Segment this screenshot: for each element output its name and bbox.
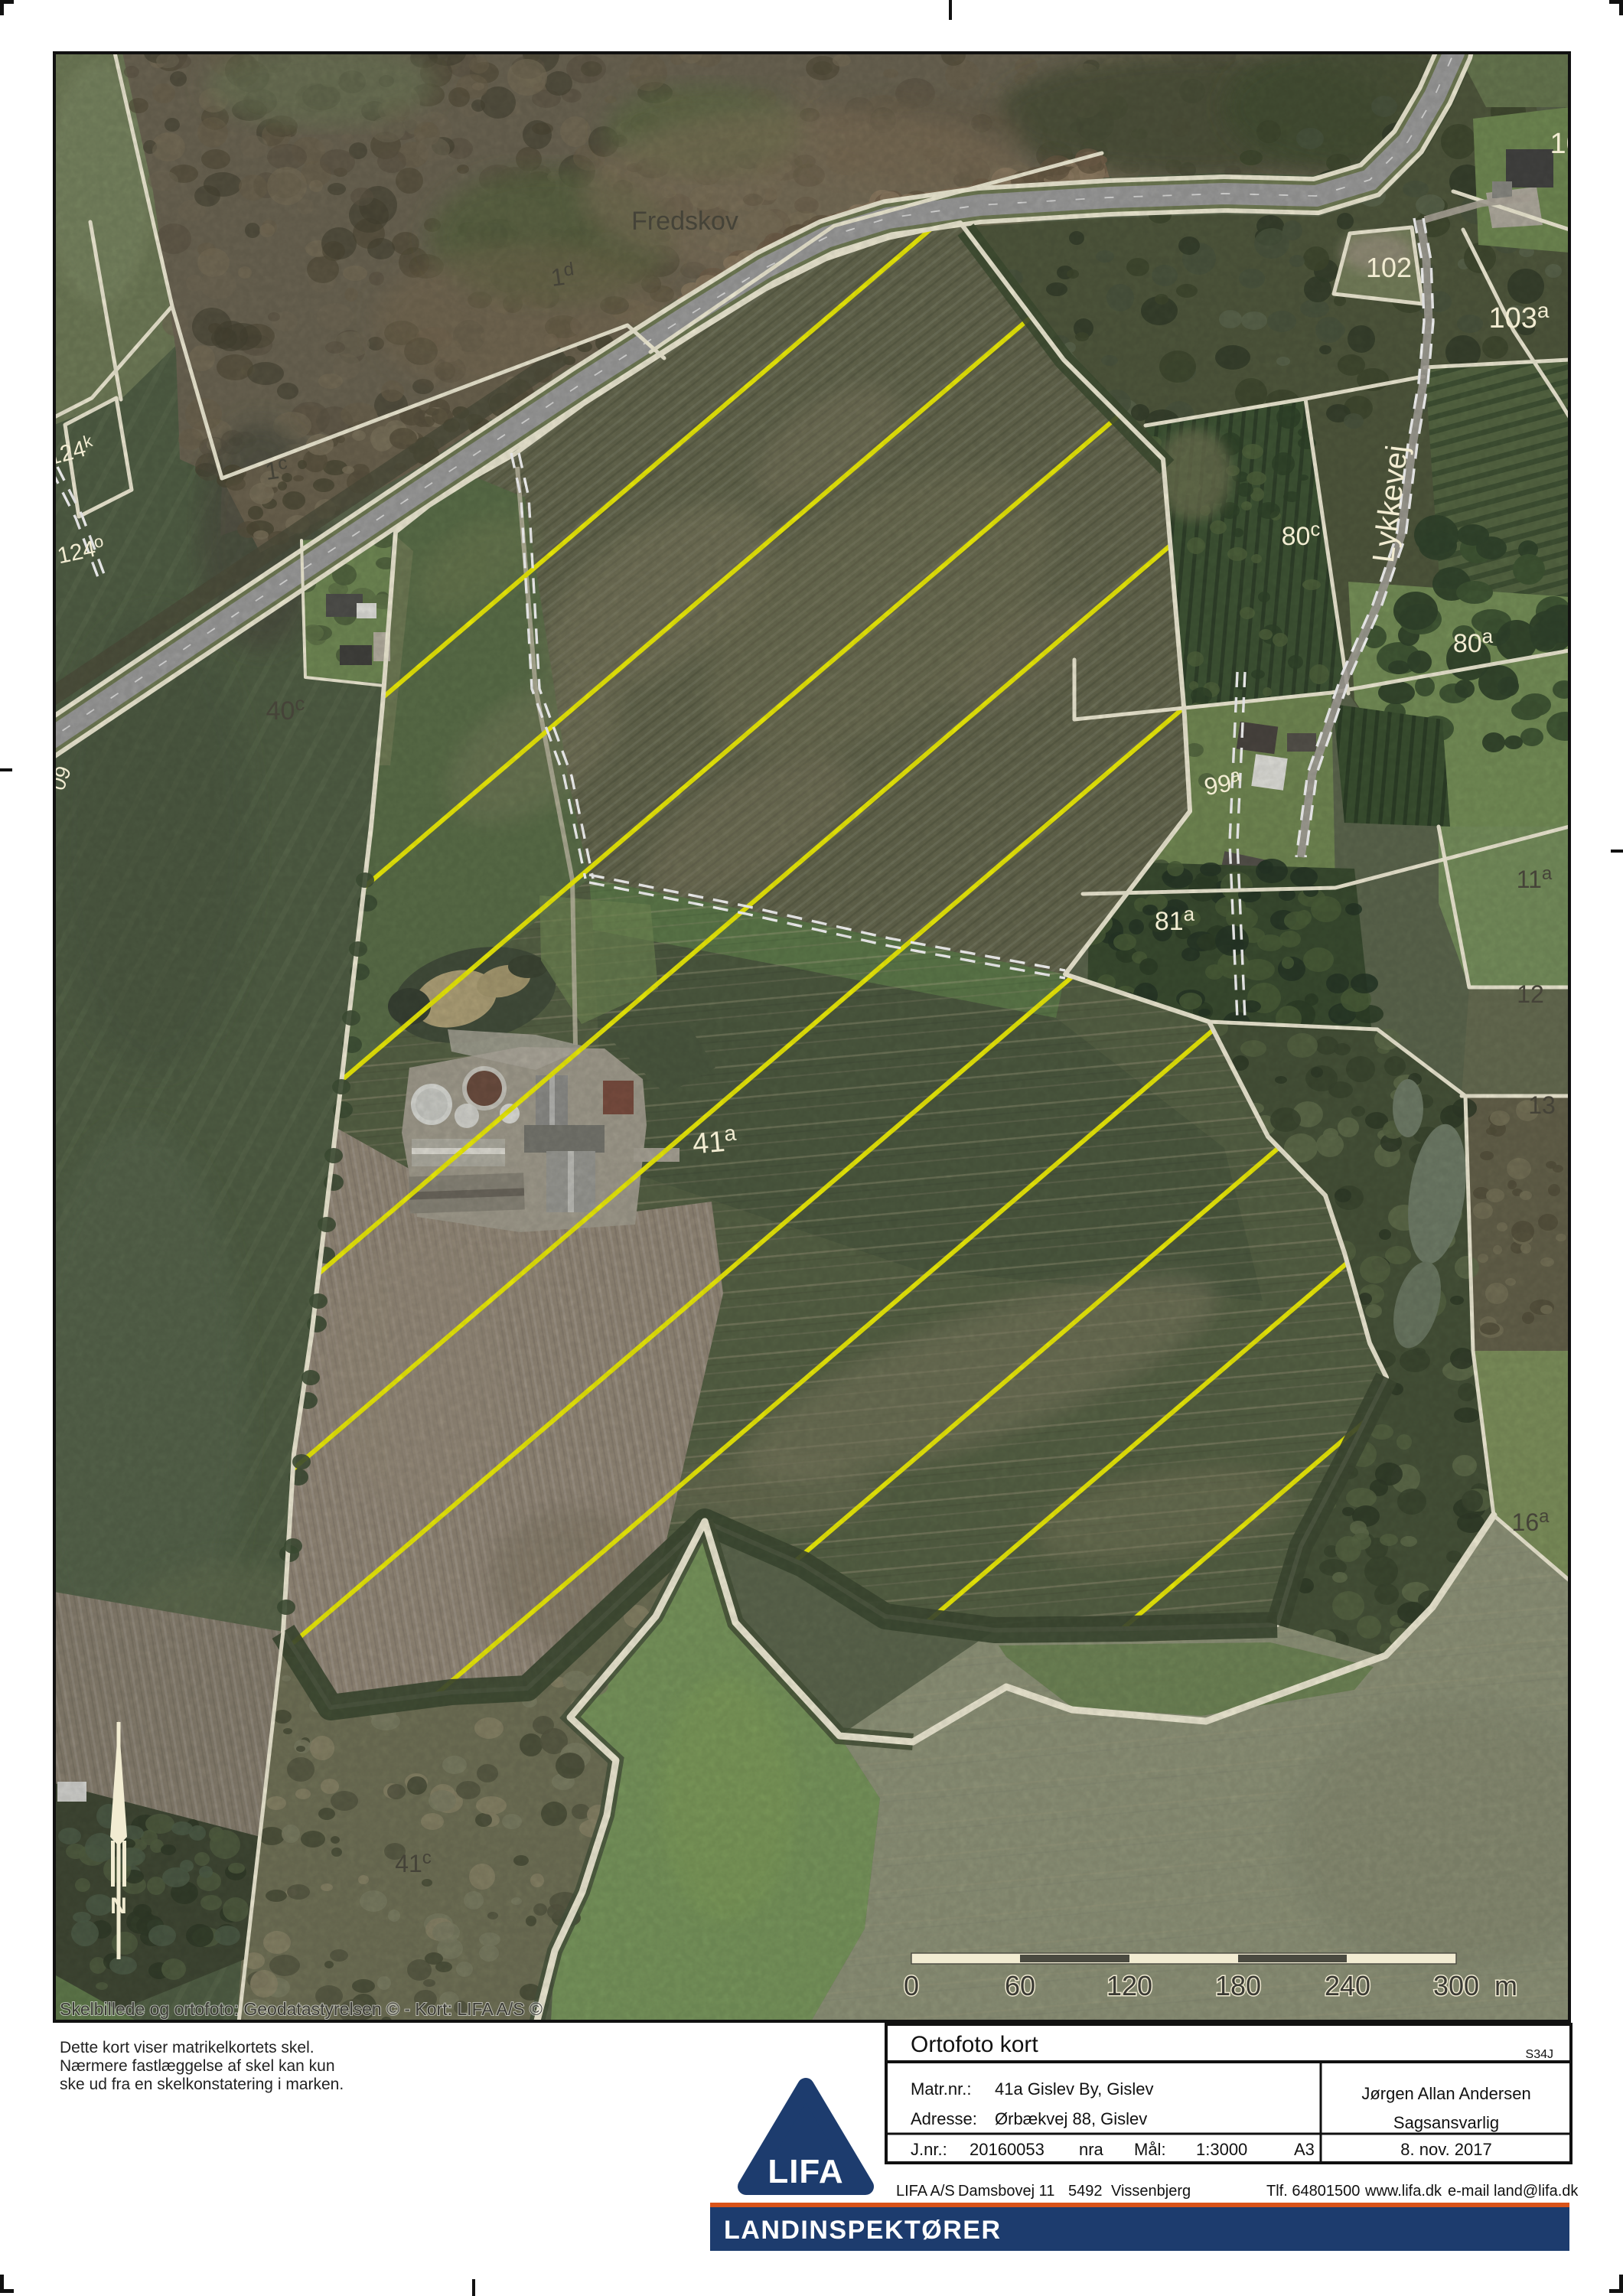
svg-text:300: 300 <box>1433 1970 1479 2001</box>
svg-text:nra: nra <box>1079 2140 1104 2159</box>
svg-text:60: 60 <box>1005 1970 1035 2001</box>
svg-text:20160053: 20160053 <box>970 2140 1045 2159</box>
svg-text:www.lifa.dk: www.lifa.dk <box>1364 2183 1442 2200</box>
svg-text:m: m <box>1494 1970 1517 2001</box>
svg-text:8. nov. 2017: 8. nov. 2017 <box>1400 2140 1491 2159</box>
svg-text:Jørgen Allan Andersen: Jørgen Allan Andersen <box>1361 2084 1530 2103</box>
svg-text:240: 240 <box>1325 1970 1370 2001</box>
svg-text:ske ud fra en skelkonstatering: ske ud fra en skelkonstatering i marken. <box>60 2076 344 2093</box>
svg-text:13: 13 <box>1528 1091 1556 1119</box>
svg-text:Damsbovej 11: Damsbovej 11 <box>958 2183 1054 2200</box>
svg-text:Ortofoto kort: Ortofoto kort <box>911 2032 1038 2057</box>
svg-text:LANDINSPEKTØRER: LANDINSPEKTØRER <box>724 2216 1002 2245</box>
svg-text:41a Gislev By, Gislev: 41a Gislev By, Gislev <box>995 2079 1153 2099</box>
svg-text:102: 102 <box>1366 252 1412 283</box>
svg-text:Nærmere fastlæggelse af skel k: Nærmere fastlæggelse af skel kan kun <box>60 2057 335 2075</box>
svg-text:S34J: S34J <box>1526 2048 1553 2061</box>
svg-text:Mål:: Mål: <box>1134 2140 1166 2159</box>
svg-text:Skelbillede og ortofoto: Geoda: Skelbillede og ortofoto: Geodatastyrelse… <box>60 1999 543 2019</box>
svg-text:J.nr.:: J.nr.: <box>911 2140 947 2159</box>
svg-text:N: N <box>110 1893 127 1919</box>
svg-text:5492: 5492 <box>1068 2183 1103 2200</box>
svg-text:Ørbækvej 88, Gislev: Ørbækvej 88, Gislev <box>995 2109 1147 2128</box>
svg-text:e-mail land@lifa.dk: e-mail land@lifa.dk <box>1448 2183 1579 2200</box>
svg-text:180: 180 <box>1215 1970 1261 2001</box>
svg-text:Tlf. 64801500: Tlf. 64801500 <box>1266 2183 1360 2200</box>
svg-text:0: 0 <box>904 1970 919 2001</box>
svg-text:A3: A3 <box>1294 2140 1315 2159</box>
svg-text:12: 12 <box>1517 980 1544 1008</box>
svg-text:1:3000: 1:3000 <box>1196 2140 1247 2159</box>
svg-text:Sagsansvarlig: Sagsansvarlig <box>1393 2113 1499 2132</box>
svg-text:Fredskov: Fredskov <box>631 207 738 236</box>
svg-text:Matr.nr.:: Matr.nr.: <box>911 2079 971 2099</box>
svg-text:Vissenbjerg: Vissenbjerg <box>1111 2183 1191 2200</box>
svg-text:120: 120 <box>1106 1970 1152 2001</box>
svg-text:Adresse:: Adresse: <box>911 2109 977 2128</box>
svg-text:LIFA: LIFA <box>768 2153 843 2190</box>
svg-text:Dette kort viser matrikelkorte: Dette kort viser matrikelkortets skel. <box>60 2039 314 2056</box>
svg-text:LIFA A/S: LIFA A/S <box>896 2183 955 2200</box>
